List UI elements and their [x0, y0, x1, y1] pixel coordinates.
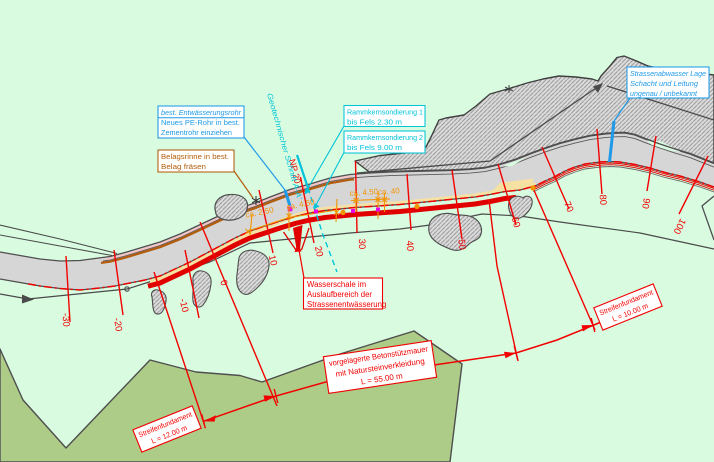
- svg-text:-20: -20: [111, 317, 124, 332]
- svg-text:Strassenabwasser Lage: Strassenabwasser Lage: [630, 69, 706, 78]
- svg-text:-30: -30: [60, 313, 72, 327]
- svg-text:Belag fräsen: Belag fräsen: [161, 162, 206, 171]
- svg-text:30: 30: [356, 239, 367, 250]
- svg-text:80: 80: [597, 194, 609, 205]
- svg-text:best. Entwässerungsrohr: best. Entwässerungsrohr: [161, 108, 241, 117]
- svg-text:Zementrohr einziehen: Zementrohr einziehen: [161, 128, 232, 137]
- svg-text:40: 40: [404, 240, 416, 251]
- svg-text:Rammkernsondierung 2: Rammkernsondierung 2: [347, 133, 423, 142]
- svg-text:Auslaufbereich der: Auslaufbereich der: [307, 290, 372, 299]
- svg-text:20: 20: [312, 245, 325, 258]
- svg-text:Wasserschale im: Wasserschale im: [307, 280, 366, 289]
- svg-text:bis Fels 9.00 m: bis Fels 9.00 m: [347, 143, 402, 152]
- svg-text:Strassenentwässerung: Strassenentwässerung: [307, 300, 386, 309]
- svg-text:50: 50: [455, 239, 467, 251]
- svg-text:90: 90: [639, 197, 652, 209]
- svg-text:Belagsrinne in best.: Belagsrinne in best.: [161, 152, 229, 161]
- svg-text:ungenau / unbekannt: ungenau / unbekannt: [630, 89, 698, 98]
- svg-text:Neues PE-Rohr in best.: Neues PE-Rohr in best.: [161, 118, 240, 127]
- svg-text:Schacht und Leitung: Schacht und Leitung: [630, 79, 699, 88]
- svg-text:ca. 40: ca. 40: [378, 186, 401, 197]
- svg-text:bis Fels 2.30 m: bis Fels 2.30 m: [347, 118, 402, 127]
- svg-text:Rammkernsondierung 1: Rammkernsondierung 1: [347, 108, 423, 117]
